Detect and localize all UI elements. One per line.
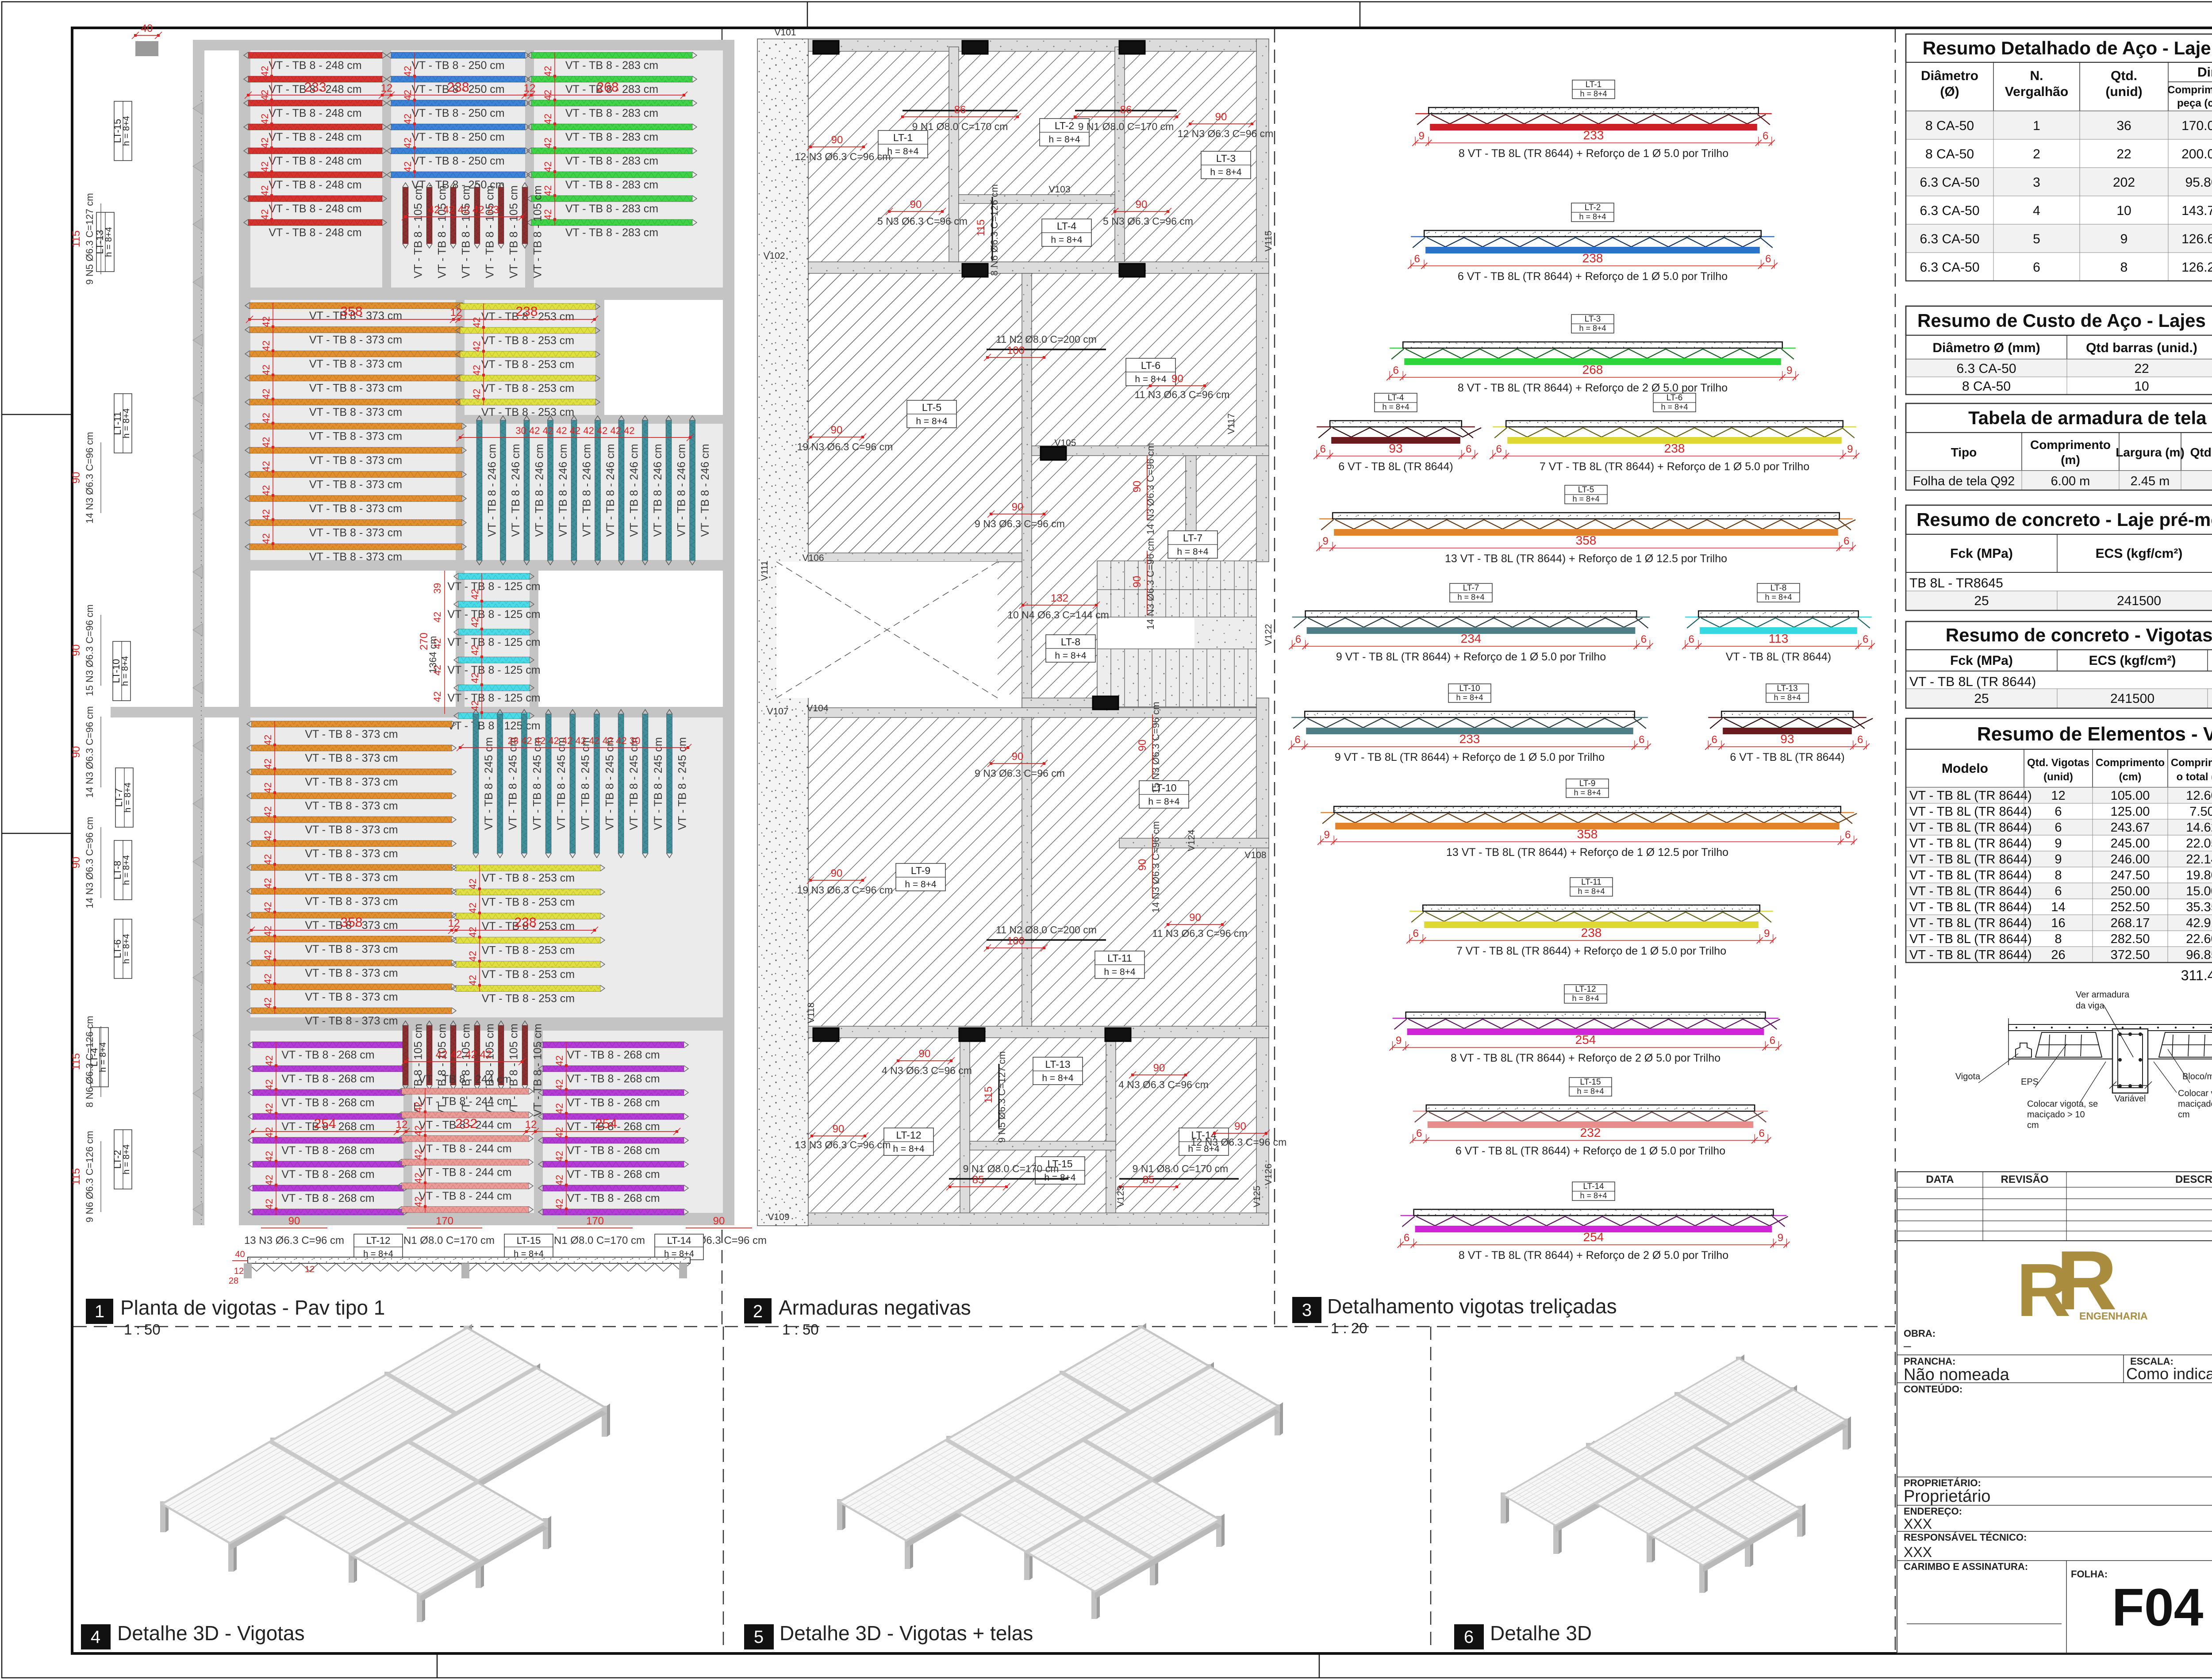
svg-text:VT - TB 8 - 373 cm: VT - TB 8 - 373 cm — [305, 871, 398, 884]
svg-text:42: 42 — [261, 533, 272, 544]
svg-text:VT - TB 8 - 105 cm: VT - TB 8 - 105 cm — [436, 185, 449, 278]
svg-text:9: 9 — [1847, 443, 1853, 455]
svg-text:6 VT - TB 8L (TR 8644): 6 VT - TB 8L (TR 8644) — [1730, 751, 1844, 763]
svg-text:42 42 42 42 23: 42 42 42 42 23 — [428, 204, 499, 216]
svg-text:90: 90 — [713, 1215, 725, 1227]
svg-text:cm: cm — [2178, 1110, 2190, 1120]
svg-text:h = 8+4: h = 8+4 — [1457, 593, 1484, 602]
svg-text:LT-8: LT-8 — [1061, 636, 1080, 648]
svg-text:9: 9 — [1778, 1232, 1783, 1244]
svg-text:6.3 CA-50: 6.3 CA-50 — [1956, 361, 2016, 376]
svg-text:VT - TB 8 - 246 cm: VT - TB 8 - 246 cm — [580, 444, 593, 537]
svg-text:247.50: 247.50 — [2111, 868, 2150, 882]
svg-text:8: 8 — [2120, 260, 2128, 275]
svg-text:12: 12 — [396, 1119, 408, 1131]
svg-text:h = 8+4: h = 8+4 — [1574, 788, 1601, 797]
svg-text:h = 8+4: h = 8+4 — [1580, 89, 1607, 98]
svg-text:VT - TB 8L (TR 8644): VT - TB 8L (TR 8644) — [1909, 789, 2032, 803]
svg-text:13 N3 Ø6.3 C=96 cm: 13 N3 Ø6.3 C=96 cm — [244, 1235, 344, 1247]
svg-text:19 N3 Ø6.3 C=96 cm: 19 N3 Ø6.3 C=96 cm — [797, 441, 893, 453]
svg-text:6.3 CA-50: 6.3 CA-50 — [1920, 232, 1979, 246]
svg-text:42: 42 — [261, 389, 272, 399]
svg-text:VT - TB 8 - 245 cm: VT - TB 8 - 245 cm — [555, 737, 568, 830]
svg-text:42: 42 — [402, 66, 413, 77]
svg-text:1 : 50: 1 : 50 — [782, 1321, 819, 1338]
svg-text:h = 8+4: h = 8+4 — [916, 416, 948, 426]
svg-text:VT - TB 8 - 246 cm: VT - TB 8 - 246 cm — [699, 444, 711, 537]
svg-text:8 CA-50: 8 CA-50 — [1925, 119, 1974, 133]
svg-text:241500: 241500 — [2117, 594, 2161, 608]
svg-text:h = 8+4: h = 8+4 — [1055, 651, 1087, 661]
svg-text:VT - TB 8 - 248 cm: VT - TB 8 - 248 cm — [269, 203, 361, 215]
svg-text:VT - TB 8 - 125 cm: VT - TB 8 - 125 cm — [447, 692, 540, 704]
svg-text:LT-14: LT-14 — [1583, 1182, 1604, 1191]
svg-text:8: 8 — [2055, 932, 2062, 946]
svg-text:VT - TB 8 - 373 cm: VT - TB 8 - 373 cm — [309, 334, 402, 346]
svg-text:N.: N. — [2030, 69, 2043, 83]
svg-text:372.50: 372.50 — [2111, 948, 2150, 962]
svg-text:115: 115 — [975, 219, 987, 236]
svg-text:DESCRIÇÃO: DESCRIÇÃO — [2175, 1173, 2212, 1185]
svg-text:V104: V104 — [806, 703, 828, 713]
svg-text:maciçado > 10: maciçado > 10 — [2027, 1110, 2085, 1120]
svg-text:VT - TB 8 - 105 cm: VT - TB 8 - 105 cm — [460, 185, 472, 278]
svg-text:VT - TB 8 - 283 cm: VT - TB 8 - 283 cm — [565, 155, 658, 167]
svg-text:9 N1 Ø8.0 C=170 cm: 9 N1 Ø8.0 C=170 cm — [1133, 1163, 1229, 1174]
svg-text:6: 6 — [1843, 535, 1849, 547]
svg-text:358: 358 — [340, 304, 362, 319]
svg-text:26: 26 — [2051, 948, 2065, 962]
svg-text:42: 42 — [262, 854, 273, 865]
svg-text:6: 6 — [1712, 734, 1717, 746]
svg-text:12: 12 — [234, 1266, 244, 1276]
svg-text:7 VT - TB 8L (TR 8644) + Refor: 7 VT - TB 8L (TR 8644) + Reforço de 1 Ø … — [1456, 945, 1726, 957]
svg-text:Qtd.: Qtd. — [2111, 69, 2137, 83]
svg-text:42: 42 — [432, 612, 443, 622]
svg-text:LT-12: LT-12 — [1575, 985, 1596, 994]
svg-text:VT - TB 8 - 283 cm: VT - TB 8 - 283 cm — [565, 59, 658, 72]
svg-text:90: 90 — [1153, 1062, 1165, 1074]
svg-text:VT - TB 8 - 248 cm: VT - TB 8 - 248 cm — [269, 107, 361, 119]
svg-text:42: 42 — [554, 1079, 565, 1090]
svg-text:LT-1: LT-1 — [893, 132, 913, 143]
svg-text:VT - TB 8L (TR 8644): VT - TB 8L (TR 8644) — [1909, 821, 2032, 835]
svg-text:(cm): (cm) — [2119, 771, 2142, 783]
svg-text:86: 86 — [954, 104, 966, 116]
svg-text:100: 100 — [1007, 935, 1025, 947]
svg-text:42: 42 — [264, 1175, 275, 1185]
svg-text:peça (cm): peça (cm) — [2177, 97, 2212, 109]
svg-text:VT - TB 8 - 244 cm: VT - TB 8 - 244 cm — [419, 1143, 511, 1155]
svg-text:VT - TB 8 - 373 cm: VT - TB 8 - 373 cm — [305, 752, 398, 764]
svg-text:VT - TB 8 - 268 cm: VT - TB 8 - 268 cm — [281, 1144, 374, 1157]
svg-text:14: 14 — [2051, 900, 2065, 914]
svg-text:42: 42 — [467, 903, 478, 913]
svg-text:h = 8+4: h = 8+4 — [104, 227, 114, 257]
svg-text:311.42: 311.42 — [2181, 967, 2212, 983]
svg-text:90: 90 — [831, 424, 843, 436]
svg-text:9 N3 Ø6.3 C=96 cm: 9 N3 Ø6.3 C=96 cm — [975, 518, 1065, 529]
svg-text:90: 90 — [1215, 111, 1227, 123]
svg-text:42: 42 — [542, 209, 553, 220]
svg-text:6.00 m: 6.00 m — [2051, 474, 2090, 488]
svg-text:90: 90 — [1171, 373, 1183, 385]
svg-text:Compriment: Compriment — [2171, 757, 2212, 769]
svg-text:42: 42 — [264, 1055, 275, 1066]
svg-text:h = 8+4: h = 8+4 — [1577, 1087, 1604, 1096]
svg-text:h = 8+4: h = 8+4 — [1661, 403, 1688, 411]
svg-text:V106: V106 — [802, 553, 824, 563]
svg-text:358: 358 — [340, 915, 362, 930]
svg-text:232: 232 — [455, 1116, 477, 1131]
svg-text:12: 12 — [381, 82, 393, 94]
svg-text:15.00: 15.00 — [2186, 884, 2212, 898]
svg-text:(Ø): (Ø) — [1940, 84, 1959, 99]
svg-text:Planta de vigotas - Pav tipo 1: Planta de vigotas - Pav tipo 1 — [120, 1296, 385, 1319]
svg-text:Dimensões: Dimensões — [2197, 65, 2212, 80]
svg-text:V117: V117 — [1226, 413, 1237, 434]
svg-text:245.00: 245.00 — [2111, 836, 2150, 851]
svg-text:VT - TB 8 - 245 cm: VT - TB 8 - 245 cm — [483, 737, 495, 830]
svg-text:Comprimento: Comprimento — [2096, 757, 2165, 769]
svg-text:8 VT - TB 8L (TR 8644) + Refor: 8 VT - TB 8L (TR 8644) + Reforço de 1 Ø … — [1459, 147, 1728, 160]
svg-text:42: 42 — [413, 1197, 424, 1207]
svg-text:VT - TB 8 - 253 cm: VT - TB 8 - 253 cm — [481, 406, 574, 418]
svg-text:6 VT - TB 8L (TR 8644) + Refor: 6 VT - TB 8L (TR 8644) + Reforço de 1 Ø … — [1458, 270, 1728, 283]
svg-text:1: 1 — [2033, 119, 2040, 133]
svg-text:6: 6 — [1496, 443, 1502, 455]
svg-text:42: 42 — [471, 341, 482, 352]
svg-text:90: 90 — [1189, 912, 1201, 924]
svg-text:LT-15: LT-15 — [517, 1235, 541, 1246]
svg-text:358: 358 — [1576, 533, 1597, 547]
svg-text:VT - TB 8 - 245 cm: VT - TB 8 - 245 cm — [580, 737, 592, 830]
svg-text:VT - TB 8 - 373 cm: VT - TB 8 - 373 cm — [305, 800, 398, 812]
svg-text:28 42 42 42 42 42 42 42: 28 42 42 42 42 42 42 42 42 30 — [508, 735, 641, 746]
svg-text:VT - TB 8 - 373 cm: VT - TB 8 - 373 cm — [309, 479, 402, 491]
svg-text:6: 6 — [1765, 253, 1771, 265]
svg-text:VT - TB 8 - 244 cm: VT - TB 8 - 244 cm — [419, 1166, 511, 1179]
svg-text:6: 6 — [1845, 829, 1851, 841]
svg-text:126.61: 126.61 — [2181, 232, 2212, 246]
svg-text:VT - TB 8L (TR 8644): VT - TB 8L (TR 8644) — [1726, 651, 1832, 663]
svg-text:10 N4 Ø6.3 C=144 cm: 10 N4 Ø6.3 C=144 cm — [1007, 609, 1109, 621]
svg-text:9: 9 — [2055, 852, 2062, 867]
svg-text:V109: V109 — [768, 1212, 789, 1222]
svg-text:5 N3 Ø6.3 C=96 cm: 5 N3 Ø6.3 C=96 cm — [877, 215, 968, 227]
svg-text:VT - TB 8 - 245 cm: VT - TB 8 - 245 cm — [652, 737, 664, 830]
svg-text:VT - TB 8 - 268 cm: VT - TB 8 - 268 cm — [567, 1049, 660, 1061]
svg-text:42: 42 — [261, 341, 272, 351]
svg-text:VT - TB 8L (TR 8644): VT - TB 8L (TR 8644) — [1909, 916, 2032, 930]
svg-text:6: 6 — [1413, 928, 1419, 940]
svg-text:XXX: XXX — [1904, 1516, 1932, 1532]
svg-text:6: 6 — [1770, 1035, 1775, 1047]
svg-text:LT-10: LT-10 — [1459, 684, 1480, 693]
svg-text:90: 90 — [831, 867, 843, 879]
svg-text:42: 42 — [471, 317, 482, 328]
svg-text:6: 6 — [2055, 821, 2062, 835]
svg-text:da viga: da viga — [2076, 1001, 2104, 1011]
svg-text:22.14: 22.14 — [2186, 852, 2212, 867]
svg-text:12: 12 — [450, 307, 462, 318]
svg-text:6: 6 — [1759, 1128, 1765, 1139]
svg-text:42: 42 — [469, 617, 480, 627]
svg-text:Qtd barras (unid.): Qtd barras (unid.) — [2086, 341, 2197, 355]
svg-text:85: 85 — [972, 1174, 984, 1186]
svg-text:42: 42 — [264, 1103, 275, 1114]
svg-text:LT-12: LT-12 — [366, 1235, 391, 1246]
svg-text:XXX: XXX — [1904, 1544, 1932, 1560]
svg-text:V107: V107 — [767, 706, 788, 717]
svg-text:42: 42 — [259, 114, 270, 124]
svg-text:VT - TB 8 - 373 cm: VT - TB 8 - 373 cm — [309, 551, 402, 563]
svg-text:42: 42 — [542, 114, 553, 124]
svg-text:V111: V111 — [760, 560, 770, 581]
svg-text:–: – — [1904, 1339, 1911, 1353]
svg-text:h = 8+4: h = 8+4 — [122, 116, 131, 146]
svg-text:LT-3: LT-3 — [1585, 315, 1601, 324]
svg-text:6: 6 — [1320, 443, 1326, 455]
svg-text:VT - TB 8 - 245 cm: VT - TB 8 - 245 cm — [628, 737, 640, 830]
svg-text:h = 8+4: h = 8+4 — [1177, 547, 1209, 557]
svg-text:42: 42 — [262, 878, 273, 889]
svg-text:Tabela de armadura de tela sol: Tabela de armadura de tela soldada — [1968, 407, 2212, 428]
svg-text:ECS (kgf/cm²): ECS (kgf/cm²) — [2096, 546, 2183, 561]
svg-text:9: 9 — [1786, 364, 1792, 376]
svg-text:14 N3 Ø6.3 C=96 cm: 14 N3 Ø6.3 C=96 cm — [84, 706, 95, 798]
svg-text:VT - TB 8 - 283 cm: VT - TB 8 - 283 cm — [565, 131, 658, 143]
svg-text:Ver armadura: Ver armadura — [2076, 990, 2130, 1000]
svg-text:3: 3 — [2033, 175, 2040, 190]
svg-text:9 N5 Ø6.3 C=127 cm: 9 N5 Ø6.3 C=127 cm — [84, 193, 95, 284]
svg-text:VT - TB 8 - 283 cm: VT - TB 8 - 283 cm — [565, 226, 658, 239]
svg-text:42: 42 — [469, 700, 480, 711]
svg-text:h = 8+4: h = 8+4 — [1579, 324, 1606, 333]
svg-text:VT - TB 8 - 373 cm: VT - TB 8 - 373 cm — [309, 430, 402, 443]
svg-text:42: 42 — [542, 185, 553, 196]
svg-text:22: 22 — [2134, 361, 2149, 376]
svg-text:VT - TB 8 - 245 cm: VT - TB 8 - 245 cm — [603, 737, 616, 830]
svg-text:8 VT - TB 8L (TR 8644) + Refor: 8 VT - TB 8L (TR 8644) + Reforço de 2 Ø … — [1459, 1249, 1728, 1262]
svg-text:42: 42 — [413, 1173, 424, 1183]
svg-text:h = 8+4: h = 8+4 — [1382, 403, 1409, 411]
svg-text:VT - TB 8 - 246 cm: VT - TB 8 - 246 cm — [557, 444, 569, 537]
svg-text:VT - TB 8 - 373 cm: VT - TB 8 - 373 cm — [305, 943, 398, 955]
svg-text:132: 132 — [1051, 592, 1068, 604]
svg-text:VT - TB 8 - 245 cm: VT - TB 8 - 245 cm — [531, 737, 543, 830]
svg-text:LT-13: LT-13 — [1777, 684, 1797, 693]
svg-text:42: 42 — [261, 509, 272, 520]
svg-text:VT - TB 8 - 245 cm: VT - TB 8 - 245 cm — [676, 737, 688, 830]
svg-text:9: 9 — [1396, 1035, 1402, 1047]
svg-text:h = 8+4: h = 8+4 — [1579, 212, 1606, 221]
svg-text:9 N3 Ø6.3 C=96 cm: 9 N3 Ø6.3 C=96 cm — [975, 767, 1065, 779]
svg-text:6 VT - TB 8L (TR 8644) + Refor: 6 VT - TB 8L (TR 8644) + Reforço de 1 Ø … — [1455, 1145, 1725, 1157]
svg-text:6: 6 — [1466, 443, 1471, 455]
svg-text:3: 3 — [1302, 1300, 1312, 1320]
svg-text:LT-4: LT-4 — [1057, 220, 1077, 232]
svg-text:30 42 42 42 42 42: 30 42 42 42 42 42 42 42 42 — [515, 425, 634, 436]
svg-text:7.50: 7.50 — [2189, 805, 2212, 819]
svg-text:19 N3 Ø6.3 C=96 cm: 19 N3 Ø6.3 C=96 cm — [797, 884, 893, 896]
svg-text:ENDEREÇO:: ENDEREÇO: — [1904, 1506, 1962, 1517]
svg-text:15 N3 Ø6.3 C=96 cm: 15 N3 Ø6.3 C=96 cm — [1150, 702, 1161, 793]
svg-text:VT - TB 8 - 105 cm: VT - TB 8 - 105 cm — [532, 185, 544, 278]
svg-text:1 : 50: 1 : 50 — [124, 1321, 161, 1338]
svg-text:VT - TB 8 - 245 cm: VT - TB 8 - 245 cm — [507, 737, 519, 830]
svg-text:13 VT - TB 8L (TR 8644) + Refo: 13 VT - TB 8L (TR 8644) + Reforço de 1 Ø… — [1445, 552, 1727, 565]
svg-text:39: 39 — [432, 583, 443, 594]
svg-text:12.60: 12.60 — [2186, 789, 2212, 803]
svg-text:LT-6: LT-6 — [1141, 360, 1160, 371]
svg-text:h = 8+4: h = 8+4 — [1572, 495, 1599, 503]
svg-text:4 N3 Ø6.3 C=96 cm: 4 N3 Ø6.3 C=96 cm — [1118, 1079, 1209, 1090]
svg-text:22.05: 22.05 — [2186, 836, 2212, 851]
svg-text:h = 8+4: h = 8+4 — [1572, 994, 1599, 1003]
svg-text:42: 42 — [259, 209, 270, 220]
svg-text:42 42 42 42: 42 42 42 42 — [436, 1049, 492, 1061]
svg-text:maciçado > 10: maciçado > 10 — [2178, 1099, 2212, 1109]
svg-text:6: 6 — [2055, 805, 2062, 819]
svg-text:VT - TB 8 - 248 cm: VT - TB 8 - 248 cm — [269, 155, 361, 167]
svg-text:42: 42 — [264, 1151, 275, 1162]
svg-text:6.3 CA-50: 6.3 CA-50 — [1920, 175, 1979, 190]
svg-text:VT - TB 8 - 253 cm: VT - TB 8 - 253 cm — [482, 872, 575, 884]
svg-text:202: 202 — [2113, 175, 2135, 190]
svg-text:LT-7: LT-7 — [1183, 532, 1202, 544]
svg-text:5 N3 Ø6.3 C=96 cm: 5 N3 Ø6.3 C=96 cm — [1103, 215, 1193, 227]
svg-text:h = 8+4: h = 8+4 — [120, 656, 130, 686]
svg-text:42: 42 — [259, 138, 270, 148]
svg-text:OBRA:: OBRA: — [1904, 1328, 1935, 1339]
svg-text:90: 90 — [910, 199, 922, 211]
svg-text:VT - TB 8L (TR 8644): VT - TB 8L (TR 8644) — [1909, 932, 2032, 946]
svg-text:9 VT - TB 8L (TR 8644) + Refor: 9 VT - TB 8L (TR 8644) + Reforço de 1 Ø … — [1336, 651, 1606, 663]
svg-text:238: 238 — [1582, 251, 1603, 265]
svg-text:Diâmetro Ø (mm): Diâmetro Ø (mm) — [1932, 341, 2040, 355]
svg-text:42: 42 — [402, 138, 413, 148]
svg-text:h = 8+4: h = 8+4 — [905, 879, 937, 890]
svg-text:268.17: 268.17 — [2111, 916, 2150, 930]
svg-text:42: 42 — [262, 974, 273, 984]
svg-text:Fck (MPa): Fck (MPa) — [1950, 653, 2013, 668]
svg-text:25: 25 — [1974, 691, 1989, 706]
svg-text:h = 8+4: h = 8+4 — [1210, 167, 1242, 177]
svg-text:9: 9 — [2120, 232, 2128, 246]
svg-text:42: 42 — [261, 364, 272, 375]
svg-text:VT - TB 8 - 268 cm: VT - TB 8 - 268 cm — [281, 1097, 374, 1109]
svg-text:VT - TB 8 - 253 cm: VT - TB 8 - 253 cm — [482, 968, 575, 981]
svg-text:VT - TB 8 - 283 cm: VT - TB 8 - 283 cm — [565, 179, 658, 191]
svg-text:2: 2 — [753, 1302, 763, 1321]
svg-text:8 CA-50: 8 CA-50 — [1962, 379, 2011, 394]
svg-text:90: 90 — [70, 644, 82, 656]
svg-text:22.60: 22.60 — [2186, 932, 2212, 946]
svg-text:42: 42 — [469, 589, 480, 599]
svg-text:Resumo de concreto - Laje pré-: Resumo de concreto - Laje pré-moldada Gl… — [1916, 509, 2212, 530]
svg-text:VT - TB 8 - 246 cm: VT - TB 8 - 246 cm — [675, 444, 687, 537]
svg-text:1364 cm: 1364 cm — [427, 636, 438, 673]
svg-text:9 N1 Ø8.0 C=170 cm: 9 N1 Ø8.0 C=170 cm — [395, 1235, 495, 1247]
svg-text:VT - TB 8 - 246 cm: VT - TB 8 - 246 cm — [510, 444, 522, 537]
svg-text:90: 90 — [70, 472, 82, 484]
svg-text:6: 6 — [1689, 633, 1694, 645]
svg-text:VT - TB 8 - 125 cm: VT - TB 8 - 125 cm — [447, 608, 540, 621]
svg-text:LT-9: LT-9 — [1579, 779, 1596, 788]
svg-text:6: 6 — [2033, 260, 2040, 275]
svg-text:90: 90 — [70, 746, 82, 758]
svg-text:14 N3 Ø6.3 C=96 cm: 14 N3 Ø6.3 C=96 cm — [1150, 821, 1161, 913]
svg-text:9 N1 Ø8.0 C=170 cm: 9 N1 Ø8.0 C=170 cm — [912, 121, 1008, 132]
svg-text:RESPONSÁVEL TÉCNICO:: RESPONSÁVEL TÉCNICO: — [1904, 1532, 2027, 1543]
svg-text:VT - TB 8 - 253 cm: VT - TB 8 - 253 cm — [482, 944, 575, 957]
svg-text:LT-4: LT-4 — [1388, 393, 1404, 403]
svg-text:12: 12 — [525, 1119, 537, 1131]
svg-text:6: 6 — [2055, 884, 2062, 898]
svg-text:6: 6 — [1404, 1232, 1409, 1244]
svg-text:6.3 CA-50: 6.3 CA-50 — [1920, 203, 1979, 218]
svg-text:Vigota: Vigota — [1955, 1072, 1981, 1082]
svg-text:12 N3 Ø6.3 C=96 cm: 12 N3 Ø6.3 C=96 cm — [795, 151, 891, 162]
svg-text:9 N5 Ø6.3 C=127 cm: 9 N5 Ø6.3 C=127 cm — [996, 1051, 1007, 1143]
svg-text:Colocar vigota, se: Colocar vigota, se — [2178, 1089, 2212, 1098]
svg-text:9 N6 Ø6.3 C=126 cm: 9 N6 Ø6.3 C=126 cm — [84, 1131, 95, 1222]
svg-text:90: 90 — [288, 1215, 300, 1227]
svg-text:12: 12 — [305, 1265, 315, 1274]
svg-text:90: 90 — [1131, 481, 1143, 493]
svg-text:9: 9 — [1419, 130, 1425, 142]
svg-text:cm: cm — [2027, 1120, 2039, 1130]
svg-text:125.00: 125.00 — [2111, 805, 2150, 819]
svg-text:143.73: 143.73 — [2181, 203, 2212, 218]
svg-text:o total (m): o total (m) — [2177, 771, 2212, 783]
svg-text:42: 42 — [261, 413, 272, 423]
svg-text:8 CA-50: 8 CA-50 — [1925, 147, 1974, 161]
svg-text:VT - TB 8L (TR 8644): VT - TB 8L (TR 8644) — [1909, 884, 2032, 898]
svg-text:42: 42 — [542, 66, 553, 77]
svg-text:LT-7: LT-7 — [1463, 583, 1479, 593]
svg-text:VT - TB 8 - 250 cm: VT - TB 8 - 250 cm — [411, 155, 504, 167]
svg-text:VT - TB 8 - 248 cm: VT - TB 8 - 248 cm — [269, 226, 361, 239]
svg-text:42: 42 — [262, 782, 273, 793]
svg-text:170: 170 — [586, 1215, 604, 1227]
svg-text:9: 9 — [1764, 928, 1770, 940]
svg-text:8 N6 Ø6.3 C=126 cm: 8 N6 Ø6.3 C=126 cm — [84, 1016, 95, 1107]
svg-text:VT - TB 8 - 373 cm: VT - TB 8 - 373 cm — [305, 967, 398, 979]
svg-text:42: 42 — [542, 161, 553, 172]
svg-text:9 N1 Ø8.0 C=170 cm: 9 N1 Ø8.0 C=170 cm — [1078, 121, 1174, 132]
svg-text:h = 8+4: h = 8+4 — [122, 934, 131, 964]
svg-text:42: 42 — [469, 672, 480, 683]
svg-text:VT - TB 8 - 373 cm: VT - TB 8 - 373 cm — [305, 991, 398, 1003]
svg-text:Armaduras negativas: Armaduras negativas — [779, 1296, 971, 1319]
svg-text:8: 8 — [2055, 868, 2062, 882]
svg-text:115: 115 — [70, 1168, 82, 1185]
svg-text:254: 254 — [1575, 1033, 1596, 1047]
svg-text:VT - TB 8 - 246 cm: VT - TB 8 - 246 cm — [486, 444, 498, 537]
svg-text:LT-5: LT-5 — [922, 402, 941, 413]
svg-text:VT - TB 8 - 373 cm: VT - TB 8 - 373 cm — [305, 728, 398, 740]
svg-text:VT - TB 8 - 105 cm: VT - TB 8 - 105 cm — [508, 185, 520, 278]
svg-text:42: 42 — [554, 1103, 565, 1114]
svg-text:241500: 241500 — [2110, 691, 2154, 706]
svg-text:100: 100 — [1007, 345, 1025, 357]
svg-text:246.00: 246.00 — [2111, 852, 2150, 867]
svg-text:42: 42 — [259, 161, 270, 172]
svg-text:V122: V122 — [1263, 624, 1274, 645]
svg-text:238: 238 — [515, 304, 538, 319]
